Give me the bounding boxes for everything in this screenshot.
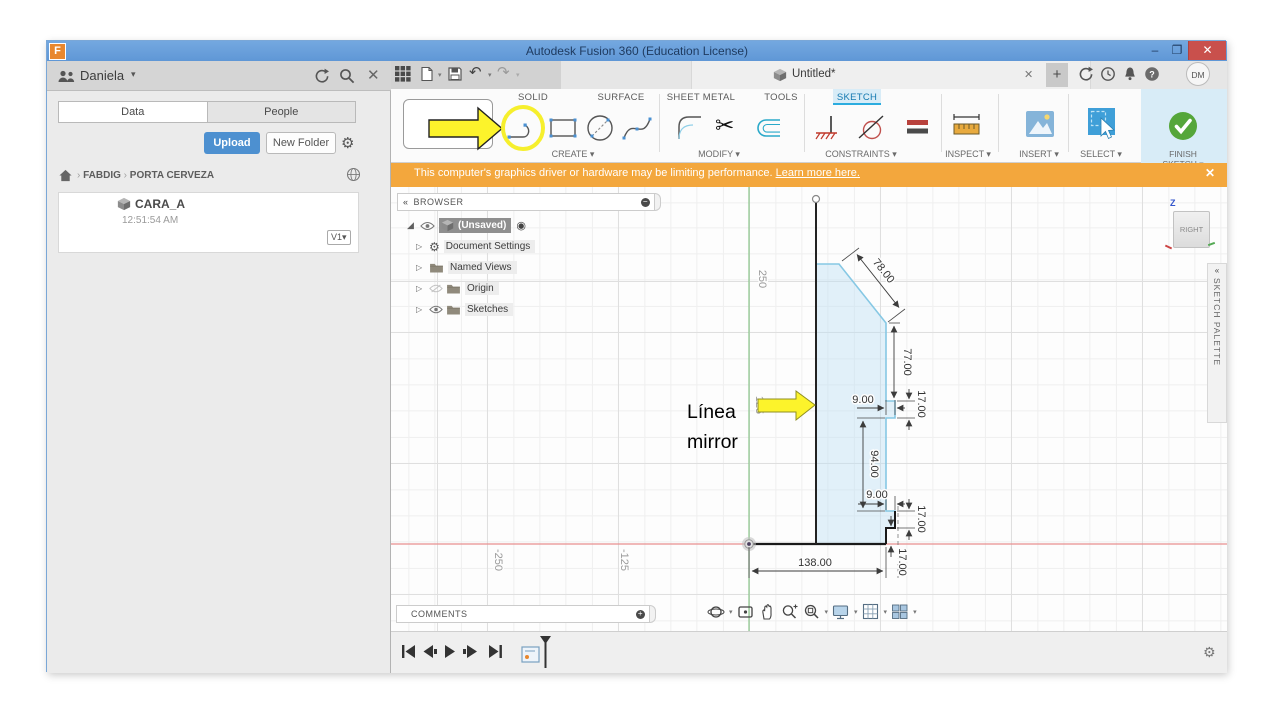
dim-17-base[interactable]: 17.00 xyxy=(896,548,908,576)
offset-tool-icon[interactable] xyxy=(751,111,785,145)
restore-button[interactable]: ❐ xyxy=(1169,43,1185,57)
expand-icon[interactable]: ▷ xyxy=(416,242,429,251)
sketch-palette-title: SKETCH PALETTE xyxy=(1212,278,1222,366)
measure-ruler-icon[interactable] xyxy=(952,113,982,141)
navigation-toolbar: ▾ ▾ ▾ ▾ ▾ xyxy=(707,603,917,621)
undo-dropdown-icon[interactable]: ▾ xyxy=(488,71,492,79)
notifications-bell-icon[interactable] xyxy=(1122,66,1138,82)
browser-node-row[interactable]: ▷ ⚙ Document Settings xyxy=(416,239,535,254)
tab-sketch-underline xyxy=(833,103,881,105)
search-icon[interactable] xyxy=(339,68,355,84)
document-tab-label[interactable]: Untitled* xyxy=(792,68,835,80)
ribbon-separator xyxy=(804,94,805,152)
spline-tool-icon[interactable] xyxy=(620,111,654,145)
new-folder-button[interactable]: New Folder xyxy=(266,132,336,154)
close-button[interactable]: ✕ xyxy=(1188,41,1226,60)
browser-options-icon[interactable]: − xyxy=(641,198,650,207)
minimize-button[interactable]: – xyxy=(1147,43,1163,57)
display-dropdown-icon[interactable]: ▾ xyxy=(854,608,858,616)
tab-sketch[interactable]: SKETCH xyxy=(837,92,877,103)
new-document-tab-button[interactable]: + xyxy=(1046,63,1068,87)
highlight-arrow xyxy=(429,108,502,149)
document-tab-close-icon[interactable]: ✕ xyxy=(1024,68,1033,81)
fit-dropdown-icon[interactable]: ▾ xyxy=(825,608,829,616)
comments-options-icon[interactable]: + xyxy=(636,610,645,619)
highlight-circle xyxy=(503,107,543,149)
dim-17-bottom[interactable]: 17.00 xyxy=(915,505,927,533)
browser-root-row[interactable]: ◢ (Unsaved) ◉ xyxy=(407,218,526,233)
file-dropdown-icon[interactable]: ▾ xyxy=(438,71,442,79)
tangent-constraint-icon[interactable] xyxy=(857,113,885,143)
data-panel-tabs: Data People xyxy=(58,101,356,123)
insert-image-icon[interactable] xyxy=(1025,109,1055,139)
comments-panel-header[interactable]: COMMENTS + xyxy=(396,605,650,623)
select-tool-icon[interactable] xyxy=(1087,107,1117,141)
breadcrumb-fabdig[interactable]: FABDIG xyxy=(83,170,121,181)
avatar[interactable]: DM xyxy=(1186,62,1210,86)
activate-target-icon[interactable]: ◉ xyxy=(516,219,526,232)
dim-17-top[interactable]: 17.00 xyxy=(915,390,927,418)
browser-node-row[interactable]: ▷ Origin xyxy=(416,281,499,296)
collapse-icon[interactable]: « xyxy=(1208,266,1226,275)
dim-138[interactable]: 138.00 xyxy=(798,557,832,569)
annotation-text: Línea mirror xyxy=(687,397,738,457)
pan-hand-icon[interactable] xyxy=(759,603,777,621)
viewports-icon[interactable] xyxy=(891,603,909,621)
timeline-playback-controls[interactable] xyxy=(401,642,513,662)
browser-panel-header[interactable]: « BROWSER − xyxy=(397,193,655,211)
expand-icon[interactable]: ▷ xyxy=(416,305,429,314)
warning-link[interactable]: Learn more here. xyxy=(776,167,860,179)
close-panel-icon[interactable]: ✕ xyxy=(367,66,380,84)
collapse-icon[interactable]: « xyxy=(403,197,409,207)
orbit-dropdown-icon[interactable]: ▾ xyxy=(729,608,733,616)
globe-icon[interactable] xyxy=(346,167,361,182)
title-bar: F Autodesk Fusion 360 (Education License… xyxy=(47,41,1227,61)
browser-title: BROWSER xyxy=(414,197,464,207)
people-icon xyxy=(57,70,76,83)
upload-button[interactable]: Upload xyxy=(204,132,260,154)
timeline-bar xyxy=(391,631,1227,673)
redo-icon[interactable]: ↷ xyxy=(497,63,510,81)
fillet-tool-icon[interactable] xyxy=(673,111,707,145)
comments-title: COMMENTS xyxy=(411,609,468,619)
node-label[interactable]: Named Views xyxy=(448,261,517,274)
user-dropdown-icon[interactable]: ▾ xyxy=(131,69,136,80)
new-file-icon[interactable] xyxy=(419,66,435,82)
browser-node-row[interactable]: ▷ Named Views xyxy=(416,260,517,275)
browser-node-row[interactable]: ▷ Sketches xyxy=(416,302,513,317)
expanded-icon[interactable]: ◢ xyxy=(407,220,420,231)
cube-icon xyxy=(441,219,454,232)
dim-77[interactable]: 77.00 xyxy=(901,348,913,376)
cube-icon xyxy=(117,197,131,211)
visibility-eye-icon[interactable] xyxy=(429,305,443,314)
home-icon[interactable] xyxy=(58,168,73,183)
dim-94[interactable]: 94.00 xyxy=(868,450,880,478)
expand-icon[interactable]: ▷ xyxy=(416,263,429,272)
version-badge[interactable]: V1▾ xyxy=(327,230,351,245)
app-window: F Autodesk Fusion 360 (Education License… xyxy=(46,40,1226,672)
tab-people[interactable]: People xyxy=(207,102,356,122)
tab-tools[interactable]: TOOLS xyxy=(764,92,798,103)
warning-close-icon[interactable]: ✕ xyxy=(1205,166,1215,180)
insert-group-label[interactable]: INSERT ▾ xyxy=(1019,149,1059,160)
inspect-group-label[interactable]: INSPECT ▾ xyxy=(945,149,991,160)
grid-snap-icon[interactable] xyxy=(862,603,880,621)
skip-start-icon xyxy=(402,645,404,658)
display-settings-icon[interactable] xyxy=(832,603,850,621)
grid-dropdown-icon[interactable]: ▾ xyxy=(884,608,888,616)
grid-label-m125: -125 xyxy=(618,549,630,571)
constraints-group-label[interactable]: CONSTRAINTS ▾ xyxy=(825,149,897,160)
gear-icon: ⚙ xyxy=(429,240,440,254)
timeline-sketch-feature[interactable] xyxy=(521,635,555,671)
timeline-settings-gear-icon[interactable]: ⚙ xyxy=(1203,645,1216,661)
redo-dropdown-icon[interactable]: ▾ xyxy=(516,71,520,79)
ribbon-separator xyxy=(941,94,942,152)
user-name[interactable]: Daniela xyxy=(80,68,124,83)
fix-constraint-icon[interactable] xyxy=(813,113,841,143)
select-group-label[interactable]: SELECT ▾ xyxy=(1080,149,1122,160)
breadcrumb: › FABDIG › PORTA CERVEZA xyxy=(77,170,214,181)
annotation-arrow xyxy=(758,391,815,420)
equal-constraint-icon[interactable] xyxy=(906,119,930,135)
file-item-time: 12:51:54 AM xyxy=(122,215,178,226)
visibility-eye-icon[interactable] xyxy=(420,221,435,231)
undo-icon[interactable]: ↶ xyxy=(469,63,482,81)
folder-icon xyxy=(446,304,461,315)
look-at-icon[interactable] xyxy=(737,603,755,621)
document-cube-icon xyxy=(773,68,787,82)
refresh-icon[interactable] xyxy=(314,68,330,84)
finish-check-icon[interactable] xyxy=(1168,111,1198,141)
node-label[interactable]: Document Settings xyxy=(444,240,536,253)
help-icon[interactable] xyxy=(1144,66,1160,82)
toolbar-highlight xyxy=(417,96,597,171)
ribbon-separator xyxy=(998,94,999,152)
clock-icon[interactable] xyxy=(1100,66,1116,82)
grid-label-250: 250 xyxy=(756,270,768,288)
settings-gear-icon[interactable]: ⚙ xyxy=(341,134,354,152)
dim-78[interactable]: 78.00 xyxy=(870,257,897,286)
ribbon-separator xyxy=(659,94,660,152)
tab-surface[interactable]: SURFACE xyxy=(598,92,645,103)
sync-icon[interactable] xyxy=(1078,66,1094,82)
modify-group-label[interactable]: MODIFY ▾ xyxy=(698,149,740,160)
folder-icon xyxy=(446,283,461,294)
viewcube[interactable]: RIGHT xyxy=(1173,211,1210,248)
ribbon-separator xyxy=(1068,94,1069,152)
node-label[interactable]: Origin xyxy=(465,282,499,295)
fit-view-icon[interactable] xyxy=(803,603,821,621)
app-grid-icon[interactable] xyxy=(395,66,411,82)
dim-9-top[interactable]: 9.00 xyxy=(852,394,873,406)
folder-icon xyxy=(429,262,444,273)
expand-icon[interactable]: ▷ xyxy=(416,284,429,293)
tab-sheet-metal[interactable]: SHEET METAL xyxy=(667,92,735,103)
save-icon[interactable] xyxy=(447,66,463,82)
file-item-card[interactable] xyxy=(58,192,359,253)
zoom-icon[interactable] xyxy=(781,603,799,621)
dim-9-bottom[interactable]: 9.00 xyxy=(866,489,887,501)
trim-scissors-icon[interactable]: ✂ xyxy=(715,113,734,139)
root-node-label[interactable]: (Unsaved) xyxy=(439,218,511,233)
orbit-icon[interactable] xyxy=(707,603,725,621)
node-label[interactable]: Sketches xyxy=(465,303,513,316)
tab-data[interactable]: Data xyxy=(59,102,207,122)
grid-label-m250: -250 xyxy=(492,549,504,571)
viewcube-z-axis-label: Z xyxy=(1170,198,1176,208)
window-title: Autodesk Fusion 360 (Education License) xyxy=(47,44,1227,58)
sketch-palette-panel[interactable]: « SKETCH PALETTE xyxy=(1207,263,1227,423)
viewports-dropdown-icon[interactable]: ▾ xyxy=(913,608,917,616)
visibility-off-icon[interactable] xyxy=(429,284,443,293)
breadcrumb-porta-cerveza[interactable]: PORTA CERVEZA xyxy=(130,170,214,181)
mirror-line-endpoint[interactable] xyxy=(813,196,820,203)
file-item-name[interactable]: CARA_A xyxy=(135,197,185,211)
